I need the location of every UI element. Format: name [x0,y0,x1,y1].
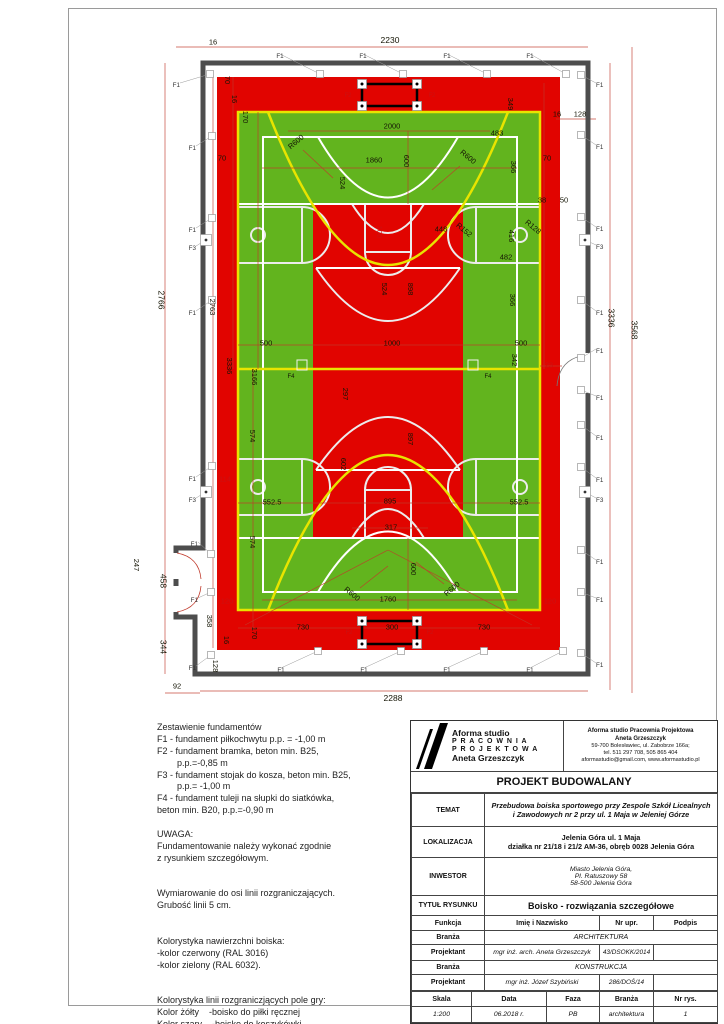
foundation-label: F1 [596,477,604,484]
tytul-value: Boisko - rozwiązania szczegółowe [485,896,718,916]
foundation-label: F1 [189,227,197,234]
foundation-label: F3 [189,245,197,252]
foundation-square-f1 [578,387,585,394]
lokalizacja-value: Jelenia Góra ul. 1 Maja działka nr 21/18… [485,827,718,858]
projektant-nr: 286/DOŚ/14 [600,975,654,991]
foundation-square-f1 [578,214,585,221]
foundation-square-f1 [208,589,215,596]
vestibule-door-opening-2 [170,586,182,612]
title-block-footer-table: Skala Data Faza Branża Nr rys. 1:200 06.… [411,991,718,1023]
foundation-square-f1 [317,71,324,78]
foundation-label: F1 [596,662,604,669]
foundation-square-f1 [400,71,407,78]
foundation-label: F1 [596,559,604,566]
foundation-label: F1 [189,310,197,317]
temat-value: Przebudowa boiska sportowego przy Zespol… [485,794,718,827]
lokalizacja-label: LOKALIZACJA [412,827,485,858]
title-block: Aforma studio P R A C O W N I A P R O J … [410,720,718,1024]
foundation-label: F1 [596,82,604,89]
foundation-label: F3 [596,497,604,504]
foundation-label: F1 [359,53,367,60]
logo-mark-icon [415,723,449,769]
drawing-sheet: F1F1F1F1F1F1F1F3F1F1F3F1F1F1F1F1F1F3F1F1… [0,0,724,1024]
foundation-square-f1 [207,71,214,78]
foundation-square-f1 [209,463,216,470]
foundation-label: F1 [596,310,604,317]
foundation-label: F1 [360,667,368,674]
contact-line: Aneta Grzeszczyk [564,736,717,744]
branza-value: ARCHITEKTURA [485,931,718,945]
foundation-square-f1 [578,355,585,362]
projektant-name: mgr inż. Józef Szybiński [485,975,600,991]
projektant-name: mgr inż. arch. Aneta Grzeszczyk [485,945,600,961]
foundation-label: F1 [191,541,199,548]
foundation-square-f1 [209,133,216,140]
inwestor-label: INWESTOR [412,858,485,896]
contact-line: tel. 511 297 708, 505 865 404 [564,750,717,757]
foundation-square-f1 [578,464,585,471]
footer-header: Faza [547,992,600,1007]
col-header: Funkcja [412,916,485,931]
notes-block: Zestawienie fundamentów F1 - fundament p… [157,722,409,1024]
footer-header: Branża [600,992,654,1007]
brand-text: Aforma studio P R A C O W N I A P R O J … [452,729,538,764]
foundation-label: F3 [189,497,197,504]
branza-value: KONSTRUKCJA [485,961,718,975]
foundation-square-f1 [578,72,585,79]
foundation-square-f1 [481,648,488,655]
foundation-square-f1 [578,547,585,554]
project-type: PROJEKT BUDOWALANY [411,772,717,793]
foundation-square-f1 [578,132,585,139]
foundation-square-f1 [209,297,216,304]
foundation-label: F1 [443,667,451,674]
foundation-label: F1 [526,53,534,60]
foundation-label: F1 [276,53,284,60]
company-logo: Aforma studio P R A C O W N I A P R O J … [411,721,563,771]
projektant-podpis [654,945,718,961]
foundation-square-f1 [484,71,491,78]
foundation-label: F1 [596,144,604,151]
inwestor-value: Miasto Jelenia Góra, Pl. Ratuszowy 58 58… [485,858,718,896]
temat-label: TEMAT [412,794,485,827]
foundation-label: F1 [189,145,197,152]
foundation-square-f1 [578,297,585,304]
data-value: 06.2018 r. [472,1007,547,1023]
projektant-label: Projektant [412,975,485,991]
field-surface [217,77,560,650]
contact-line: aformastudio@gmail.com, www.aformastudio… [564,757,717,764]
contact-line: 59-700 Bolesławiec, ul. Zabobrze 166a; [564,743,717,750]
col-header: Podpis [654,916,718,931]
foundation-square-f1 [398,648,405,655]
title-block-logo-row: Aforma studio P R A C O W N I A P R O J … [411,721,717,772]
footer-header: Nr rys. [654,992,718,1007]
foundation-square-f1 [208,652,215,659]
nr-rys-value: 1 [654,1007,718,1023]
vestibule-door-opening-1 [170,553,182,579]
foundation-label: F3 [596,244,604,251]
foundation-square-f1 [209,215,216,222]
title-block-main-table: TEMAT Przebudowa boiska sportowego przy … [411,793,718,991]
tytul-label: TYTUŁ RYSUNKU [412,896,485,916]
foundation-square-f1 [578,650,585,657]
contact-line: Aforma studio Pracownia Projektowa [564,728,717,736]
foundation-label: F1 [277,667,285,674]
brand-line: Aneta Grzeszczyk [452,754,538,764]
site-plan-drawing: F1F1F1F1F1F1F1F3F1F1F3F1F1F1F1F1F1F3F1F1… [0,0,724,710]
projektant-nr: 43/DSOKK/2014 [600,945,654,961]
foundation-label: F1 [189,476,197,483]
plan-svg: F1F1F1F1F1F1F1F3F1F1F3F1F1F1F1F1F1F3F1F1… [0,0,724,710]
foundation-square-f1 [315,648,322,655]
foundation-label: F1 [191,597,199,604]
branza-label: Branża [412,961,485,975]
projektant-label: Projektant [412,945,485,961]
skala-value: 1:200 [412,1007,472,1023]
foundation-label: F1 [173,82,181,89]
branza-label: Branża [412,931,485,945]
company-contact: Aforma studio Pracownia Projektowa Aneta… [563,721,717,771]
col-header: Imię i Nazwisko [485,916,600,931]
foundation-square-f1 [560,648,567,655]
foundation-label: F1 [596,395,604,402]
foundation-square-f1 [578,589,585,596]
foundation-label: F1 [443,53,451,60]
faza-value: PB [547,1007,600,1023]
footer-header: Data [472,992,547,1007]
footer-header: Skala [412,992,472,1007]
branza-value: architektura [600,1007,654,1023]
foundation-label: F1 [596,348,604,355]
col-header: Nr upr. [600,916,654,931]
foundation-label: F1 [596,435,604,442]
brand-line: Aforma studio [452,729,538,739]
foundation-label: F1 [596,597,604,604]
foundation-square-f1 [578,422,585,429]
projektant-podpis [654,975,718,991]
foundation-label: F1 [526,667,534,674]
brand-line: P R A C O W N I A [452,738,538,746]
foundation-label: F1 [189,665,197,672]
foundation-square-f1 [208,551,215,558]
foundation-square-f1 [563,71,570,78]
foundation-label: F1 [596,226,604,233]
